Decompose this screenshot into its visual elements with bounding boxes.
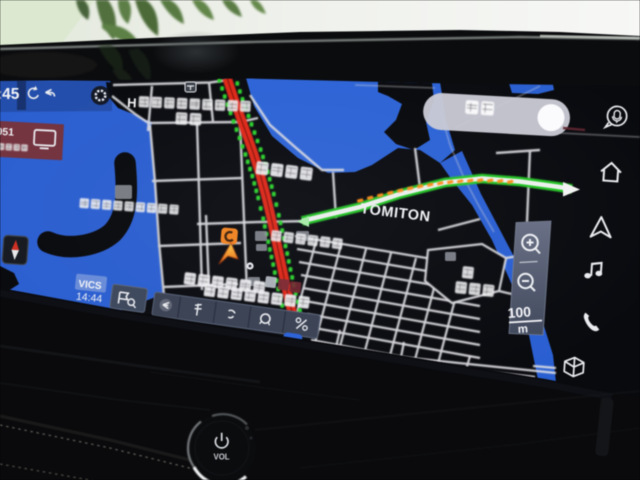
svg-text::45: :45 xyxy=(0,86,20,103)
svg-text:100: 100 xyxy=(507,303,532,321)
svg-text:m: m xyxy=(517,323,528,336)
svg-text:VOL: VOL xyxy=(214,453,230,462)
svg-text:051: 051 xyxy=(0,126,14,139)
